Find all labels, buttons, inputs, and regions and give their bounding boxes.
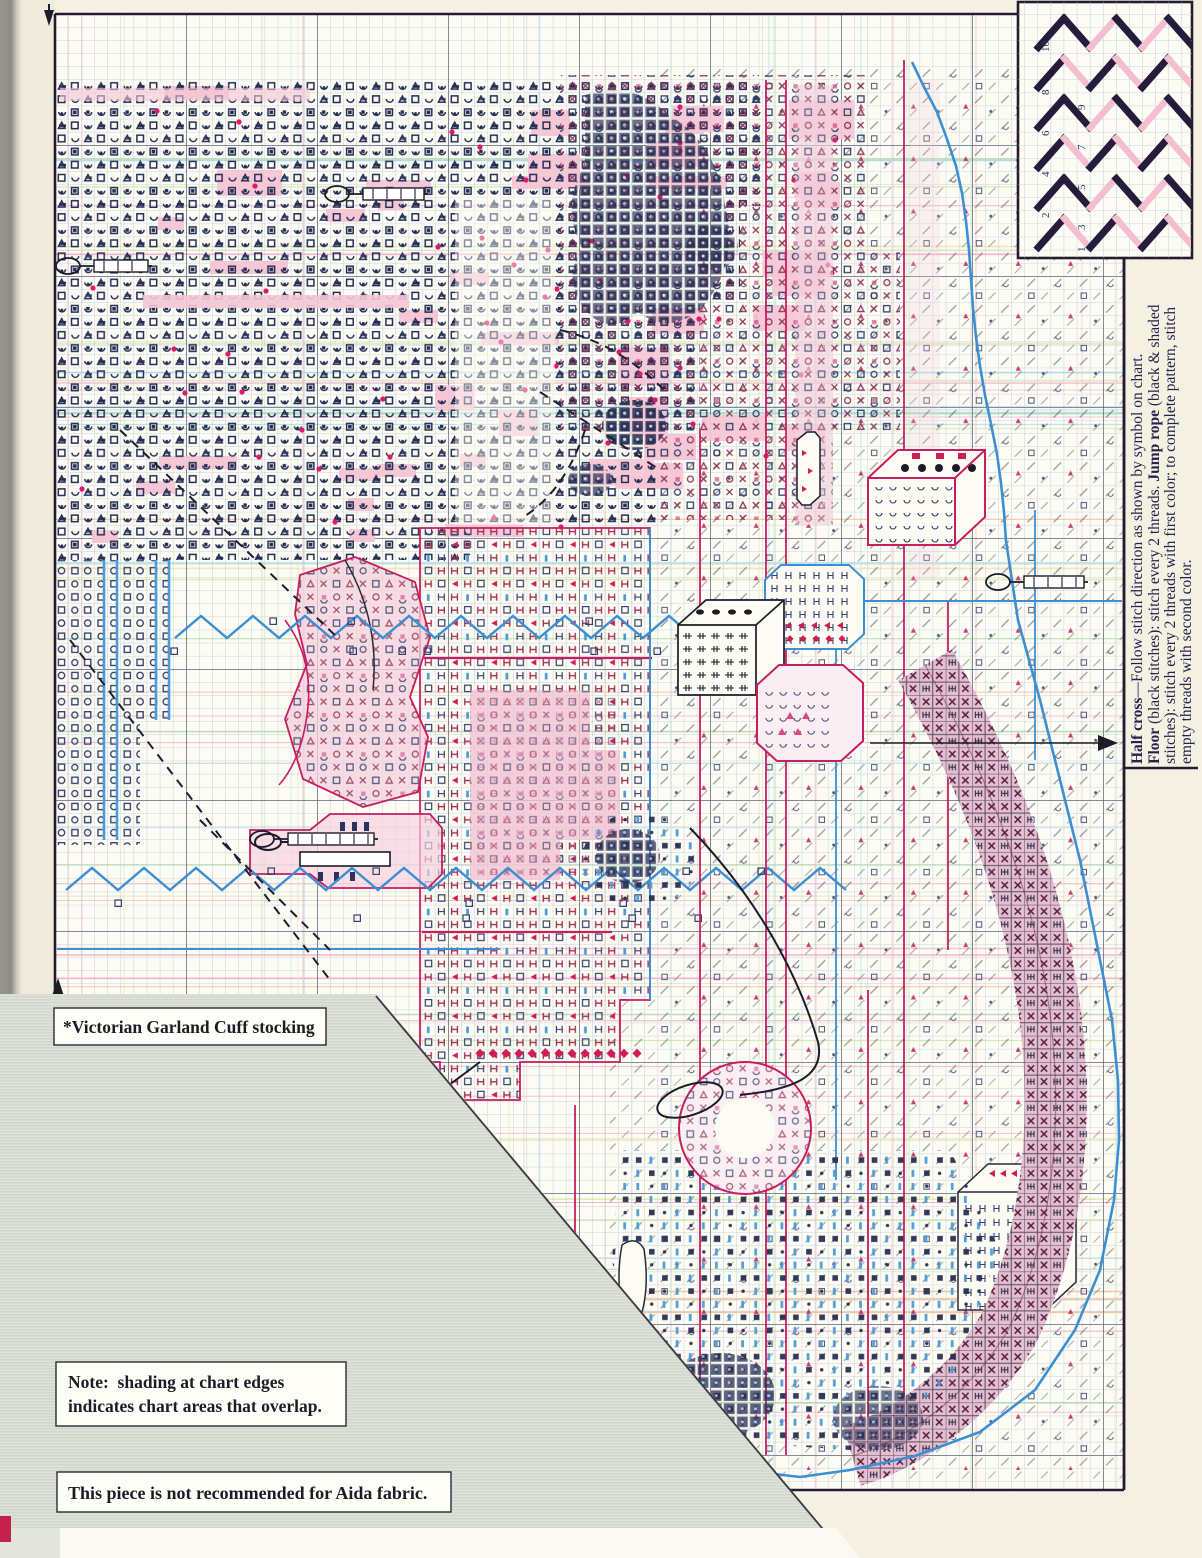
- svg-text:3: 3: [1076, 224, 1088, 230]
- svg-text:*Victorian Garland Cuff stocki: *Victorian Garland Cuff stocking: [63, 1017, 315, 1037]
- svg-text:1: 1: [1076, 247, 1088, 253]
- svg-text:empty threads with second colo: empty threads with second color.: [1178, 560, 1195, 764]
- svg-text:6: 6: [1040, 130, 1052, 136]
- svg-text:4: 4: [1040, 171, 1052, 177]
- svg-text:Half cross—Follow stitch direc: Half cross—Follow stitch direction as sh…: [1129, 354, 1146, 764]
- svg-text:10: 10: [1040, 41, 1052, 53]
- svg-text:7: 7: [1076, 144, 1088, 150]
- svg-text:2: 2: [1040, 213, 1052, 219]
- svg-text:Floor (black stitches): stitch: Floor (black stitches): stitch every 2 t…: [1146, 304, 1163, 764]
- svg-text:9: 9: [1076, 104, 1088, 110]
- svg-text:Note: shading at chart edges: Note: shading at chart edges: [68, 1372, 284, 1392]
- svg-text:5: 5: [1076, 184, 1088, 190]
- svg-text:8: 8: [1040, 89, 1052, 95]
- svg-text:indicates chart areas that ove: indicates chart areas that overlap.: [68, 1396, 322, 1416]
- svg-text:This piece is not recommended: This piece is not recommended for Aida f…: [68, 1483, 427, 1503]
- svg-text:stitches): stitch every 2 thre: stitches): stitch every 2 threads with f…: [1162, 307, 1179, 764]
